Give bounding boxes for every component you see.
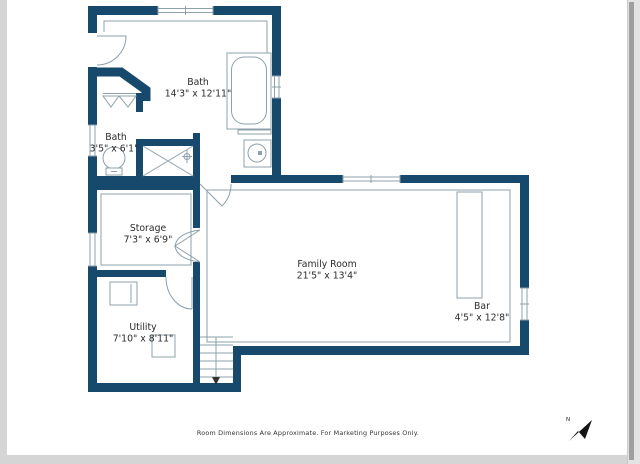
label-bath-main: Bath xyxy=(187,77,209,88)
bifold-closet-doors xyxy=(103,94,136,108)
dims-utility: 7'10" x 8'11" xyxy=(113,334,174,345)
dims-storage: 7'3" x 6'9" xyxy=(124,235,173,246)
door-utility xyxy=(166,277,192,309)
viewer-canvas: Bath 14'3" x 12'11" Bath 3'5" x 6'1" Sto… xyxy=(0,0,640,464)
window-storage-left xyxy=(88,233,97,266)
outline-bath xyxy=(104,21,267,53)
label-bath-small: Bath xyxy=(105,132,127,143)
water-heater-icon xyxy=(110,282,137,305)
door-bath-entry xyxy=(97,36,126,65)
dims-bath-main: 14'3" x 12'11" xyxy=(165,89,231,100)
label-family-room: Family Room xyxy=(297,259,356,270)
sink-icon xyxy=(244,140,271,167)
north-arrow-icon: N xyxy=(566,417,592,441)
dims-bar: 4'5" x 12'8" xyxy=(455,313,510,324)
bathtub-icon xyxy=(227,53,271,134)
dims-family-room: 21'5" x 13'4" xyxy=(297,271,358,282)
disclaimer-text: Room Dimensions Are Approximate. For Mar… xyxy=(197,429,419,437)
window-bath-top xyxy=(158,6,213,15)
window-family-right xyxy=(520,288,529,320)
door-family-entry xyxy=(200,184,231,206)
vertical-scrollbar[interactable] xyxy=(627,0,640,464)
room-labels: Bath 14'3" x 12'11" Bath 3'5" x 6'1" Sto… xyxy=(90,77,510,345)
north-arrow-label: N xyxy=(566,417,570,423)
floor-plan: Bath 14'3" x 12'11" Bath 3'5" x 6'1" Sto… xyxy=(0,0,640,464)
dims-bath-small: 3'5" x 6'1" xyxy=(90,144,139,155)
stairs-down xyxy=(200,337,233,385)
shower-icon xyxy=(143,146,193,176)
scrollbar-thumb[interactable] xyxy=(629,2,634,460)
label-storage: Storage xyxy=(130,223,167,234)
window-family-top xyxy=(343,175,400,183)
label-bar: Bar xyxy=(474,301,490,312)
bar-counter xyxy=(457,192,482,298)
label-utility: Utility xyxy=(129,322,157,333)
door-storage xyxy=(175,230,200,262)
window-bath-right xyxy=(272,76,281,98)
